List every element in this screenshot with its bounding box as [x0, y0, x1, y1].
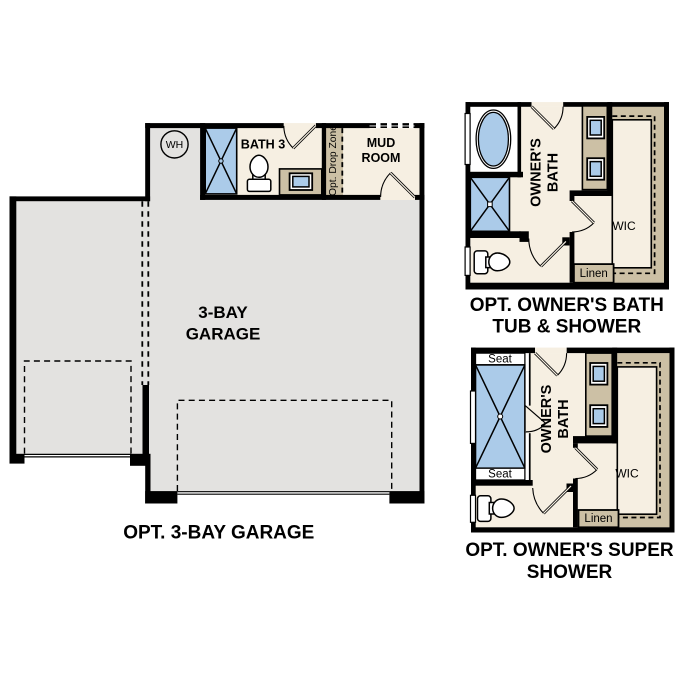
svg-text:Seat: Seat: [488, 353, 512, 365]
svg-text:WIC: WIC: [612, 219, 636, 233]
svg-text:BATH 3: BATH 3: [241, 138, 286, 152]
svg-text:OPT. 3-BAY GARAGE: OPT. 3-BAY GARAGE: [123, 522, 314, 543]
svg-text:3-BAY: 3-BAY: [198, 303, 248, 322]
svg-text:MUD: MUD: [367, 136, 395, 150]
svg-text:WIC: WIC: [615, 466, 639, 480]
svg-text:SHOWER: SHOWER: [527, 562, 613, 583]
svg-text:Linen: Linen: [580, 268, 608, 280]
svg-text:GARAGE: GARAGE: [186, 325, 261, 344]
svg-text:Seat: Seat: [488, 468, 512, 480]
svg-text:WH: WH: [166, 139, 184, 151]
svg-text:ROOM: ROOM: [362, 151, 401, 165]
svg-text:OPT. OWNER'S BATH: OPT. OWNER'S BATH: [470, 295, 664, 316]
svg-text:OPT. OWNER'S SUPER: OPT. OWNER'S SUPER: [465, 540, 674, 561]
svg-text:TUB & SHOWER: TUB & SHOWER: [492, 317, 641, 338]
svg-text:Linen: Linen: [584, 513, 612, 525]
svg-text:Opt. Drop Zone: Opt. Drop Zone: [328, 125, 339, 196]
